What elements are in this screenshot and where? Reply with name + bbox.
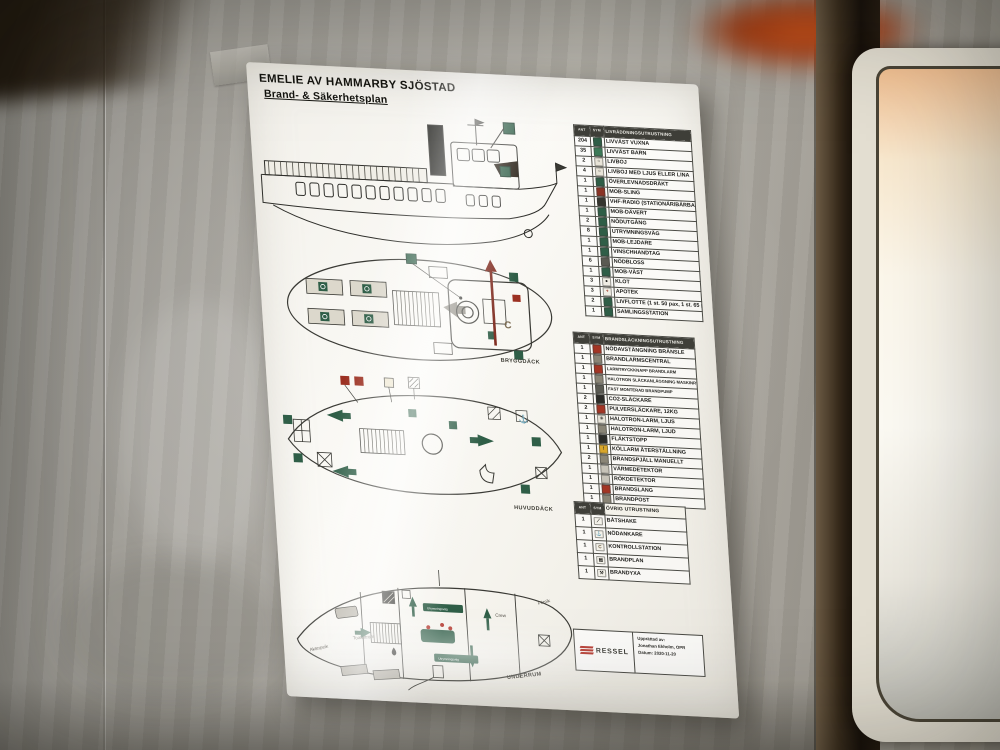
- equipment-symbol-icon: [595, 385, 604, 394]
- plan-title: Brand- & Säkerhetsplan: [264, 88, 388, 106]
- equipment-symbol-icon: [598, 425, 607, 434]
- legend-count-header: ANT: [574, 125, 591, 137]
- equipment-symbol-icon: [601, 475, 610, 484]
- equipment-symbol-icon: [596, 405, 605, 414]
- equipment-symbol-icon: [601, 267, 610, 276]
- lifesaving-legend-table: ANT SYM LIVRÄDDNINGSUTRUSTNING 204 LIVVÄ…: [573, 124, 703, 322]
- equipment-symbol-icon: [597, 197, 606, 206]
- window-glass: [876, 66, 1000, 722]
- equipment-count: 1: [577, 553, 594, 567]
- legend-symbol-header: SYM: [589, 333, 604, 345]
- legend-symbol-header: SYM: [590, 502, 605, 515]
- equipment-count: 1: [585, 306, 602, 317]
- equipment-symbol-icon: [593, 345, 602, 354]
- equipment-symbol-icon: [596, 187, 605, 196]
- safety-plan-poster: EMELIE AV HAMMARBY SJÖSTAD Brand- & Säke…: [246, 62, 739, 719]
- equipment-symbol-icon: [604, 307, 613, 316]
- equipment-symbol-icon: ⚓: [595, 530, 604, 539]
- equipment-symbol-icon: ✳: [597, 415, 606, 424]
- equipment-symbol-icon: ⚒: [597, 569, 606, 578]
- equipment-symbol-icon: [593, 137, 602, 146]
- bridge-deck-plan: C BRYGGDÄCK: [278, 247, 567, 373]
- equipment-symbol-icon: ●: [602, 277, 611, 286]
- lower-deck-plan: Akterpeik Toalettrum Crew Förpik Utrymni…: [288, 561, 584, 707]
- document-info-box: RESSEL Upprättad av: Jonathan Ekholm, OP…: [573, 629, 706, 678]
- main-deck-label: HUVUDDÄCK: [514, 504, 553, 513]
- equipment-symbol-icon: [601, 257, 610, 266]
- ship-profile-drawing: [253, 104, 576, 262]
- ressel-logo-text: RESSEL: [596, 647, 629, 656]
- equipment-count: 1: [577, 540, 594, 554]
- control-station-letter: C: [504, 320, 512, 331]
- equipment-symbol-icon: ▤: [596, 556, 605, 565]
- wall-seam-highlight: [105, 0, 106, 750]
- equipment-symbol-icon: [598, 217, 607, 226]
- ressel-flag-icon: [580, 645, 594, 656]
- equipment-symbol-icon: !: [599, 445, 608, 454]
- other-legend-table: ANT SYM ÖVRIG UTRUSTNING 1 ⟋ BÅTSHAKE: [574, 501, 691, 585]
- equipment-symbol-icon: [600, 237, 609, 246]
- equipment-symbol-icon: [595, 375, 604, 384]
- equipment-symbol-icon: ○: [594, 157, 603, 166]
- legend-count-header: ANT: [574, 502, 591, 515]
- equipment-symbol-icon: [593, 355, 602, 364]
- equipment-symbol-icon: C: [595, 543, 604, 552]
- equipment-symbol-icon: [598, 207, 607, 216]
- photo-of-safety-plan: EMELIE AV HAMMARBY SJÖSTAD Brand- & Säke…: [0, 0, 1000, 750]
- equipment-symbol-icon: [596, 177, 605, 186]
- equipment-symbol-icon: [598, 435, 607, 444]
- ressel-logo: RESSEL: [574, 630, 636, 673]
- equipment-symbol-icon: [603, 297, 612, 306]
- room-label-fore: Förpik: [537, 598, 551, 606]
- equipment-symbol-icon: [600, 455, 609, 464]
- anchor-icon: ⚓: [518, 414, 529, 424]
- equipment-symbol-icon: [594, 147, 603, 156]
- equipment-count: 1: [576, 527, 593, 541]
- equipment-symbol-icon: [594, 365, 603, 374]
- equipment-symbol-icon: [602, 485, 611, 494]
- equipment-symbol-icon: ○: [595, 167, 604, 176]
- legend-symbol-header: SYM: [590, 126, 605, 138]
- ship-window: [852, 48, 1000, 742]
- equipment-symbol-icon: [600, 247, 609, 256]
- room-label-crew: Crew: [495, 613, 507, 619]
- equipment-label: BRANDYXA: [608, 567, 690, 584]
- equipment-symbol-icon: [596, 395, 605, 404]
- fire-legend-table: ANT SYM BRANDSLÄCKNINGSUTRUSTNING 1 NÖDA…: [573, 332, 706, 510]
- wall-shadow: [60, 560, 280, 700]
- lower-deck-label: UNDERRUM: [507, 671, 543, 681]
- equipment-symbol-icon: [599, 227, 608, 236]
- bridge-deck-label: BRYGGDÄCK: [500, 357, 540, 366]
- wall-sheen: [120, 300, 280, 560]
- equipment-symbol-icon: ⟋: [594, 517, 603, 526]
- equipment-symbol-icon: [600, 465, 609, 474]
- equipment-count: 1: [578, 566, 595, 580]
- equipment-count: 1: [575, 514, 592, 528]
- equipment-symbol-icon: +: [603, 287, 612, 296]
- main-deck-plan: ⚓ HUVUDDÄCK: [278, 369, 575, 517]
- room-label-aft: Akterpeik: [309, 644, 329, 653]
- legend-count-header: ANT: [573, 332, 590, 344]
